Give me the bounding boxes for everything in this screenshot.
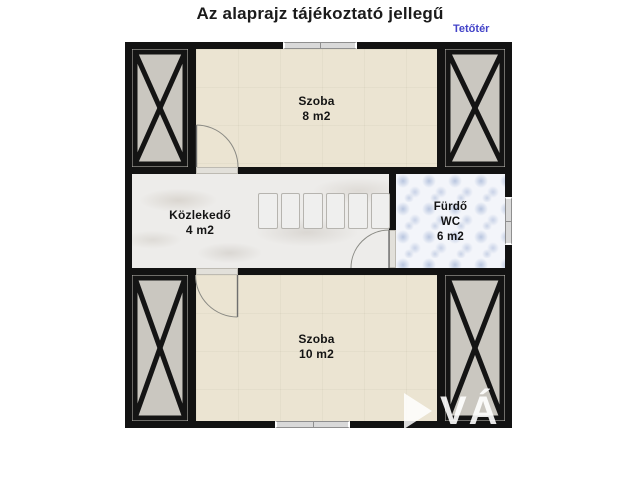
page-title: Az alaprajz tájékoztató jellegű: [0, 4, 640, 24]
stair-tread: [326, 193, 346, 229]
room-area: 8 m2: [196, 109, 437, 124]
x-brace-top-right-icon: [445, 49, 505, 167]
room-name: Fürdő: [396, 200, 505, 215]
staircase: [258, 193, 390, 229]
x-brace-bottom-left-icon: [132, 275, 188, 421]
watermark-house-icon: [404, 393, 432, 429]
watermark: VÁ: [404, 391, 500, 431]
stair-tread: [303, 193, 323, 229]
roof-panel-top-right: [445, 49, 505, 167]
stair-tread: [281, 193, 301, 229]
roof-panel-top-left: [132, 49, 188, 167]
window-top: [283, 42, 357, 49]
room-name: Közlekedő: [135, 208, 265, 223]
room-name-sub: WC: [396, 215, 505, 230]
room-name: Szoba: [196, 94, 437, 109]
room-area: 10 m2: [196, 347, 437, 362]
stair-tread: [348, 193, 368, 229]
hallway-label: Közlekedő 4 m2: [135, 208, 265, 238]
door-threshold-room-bottom: [196, 268, 238, 275]
floor-plan: Szoba 8 m2 Közlekedő 4 m2 Fürdő WC 6 m2 …: [125, 42, 512, 428]
door-threshold-room-top: [196, 167, 238, 174]
window-bottom: [275, 421, 350, 428]
room-area: 6 m2: [396, 230, 505, 245]
room-area: 4 m2: [135, 223, 265, 238]
window-right-bathroom: [505, 197, 512, 245]
roof-panel-bottom-left: [132, 275, 188, 421]
room-top-label: Szoba 8 m2: [196, 94, 437, 124]
floor-level-label: Tetőtér: [453, 23, 489, 35]
room-name: Szoba: [196, 332, 437, 347]
page: { "header": { "title": "Az alaprajz tájé…: [0, 0, 640, 480]
room-bottom-label: Szoba 10 m2: [196, 332, 437, 362]
stair-tread: [371, 193, 391, 229]
x-brace-top-left-icon: [132, 49, 188, 167]
bathroom-label: Fürdő WC 6 m2: [396, 200, 505, 245]
watermark-text: VÁ: [440, 391, 500, 431]
door-threshold-bathroom: [389, 230, 396, 268]
